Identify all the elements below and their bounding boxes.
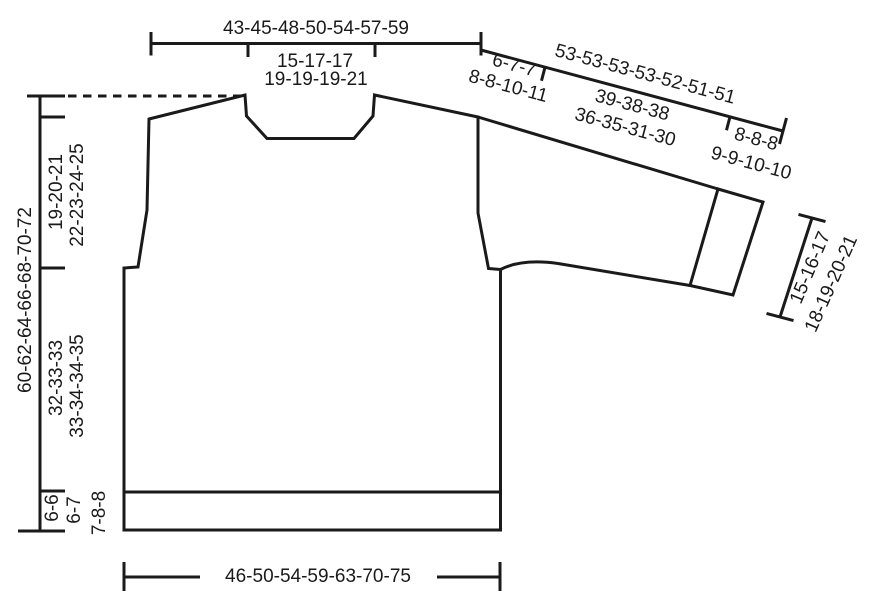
label-side-length-line2: 33-34-34-35: [69, 334, 87, 438]
label-bottom-width: 46-50-54-59-63-70-75: [225, 568, 411, 586]
schematic-drawing: [0, 0, 874, 600]
cuff-outline: [690, 189, 763, 295]
sweater-schematic: 43-45-48-50-54-57-59 15-17-17 19-19-19-2…: [0, 0, 874, 600]
label-armhole-depth-line1: 19-20-21: [48, 154, 66, 230]
label-top-width: 43-45-48-50-54-57-59: [223, 20, 409, 38]
label-armhole-depth-line2: 22-23-24-25: [69, 143, 87, 247]
label-hem-rib-line2: 6-7: [66, 496, 84, 523]
label-hem-rib-line3: 7-8-8: [91, 491, 109, 535]
sleeve-measure-tick-1: [542, 67, 546, 81]
label-hem-rib-line1: 6-6: [44, 494, 62, 521]
line-work: [18, 32, 826, 591]
label-total-length: 60-62-64-66-68-70-72: [17, 207, 35, 393]
sleeve-measure-tick-2: [727, 117, 731, 131]
label-neck-width-line2: 19-19-19-21: [264, 71, 368, 89]
label-side-length-line1: 32-33-33: [48, 340, 66, 416]
body-outline: [124, 95, 501, 530]
sleeve-underarm-edge: [501, 262, 691, 286]
